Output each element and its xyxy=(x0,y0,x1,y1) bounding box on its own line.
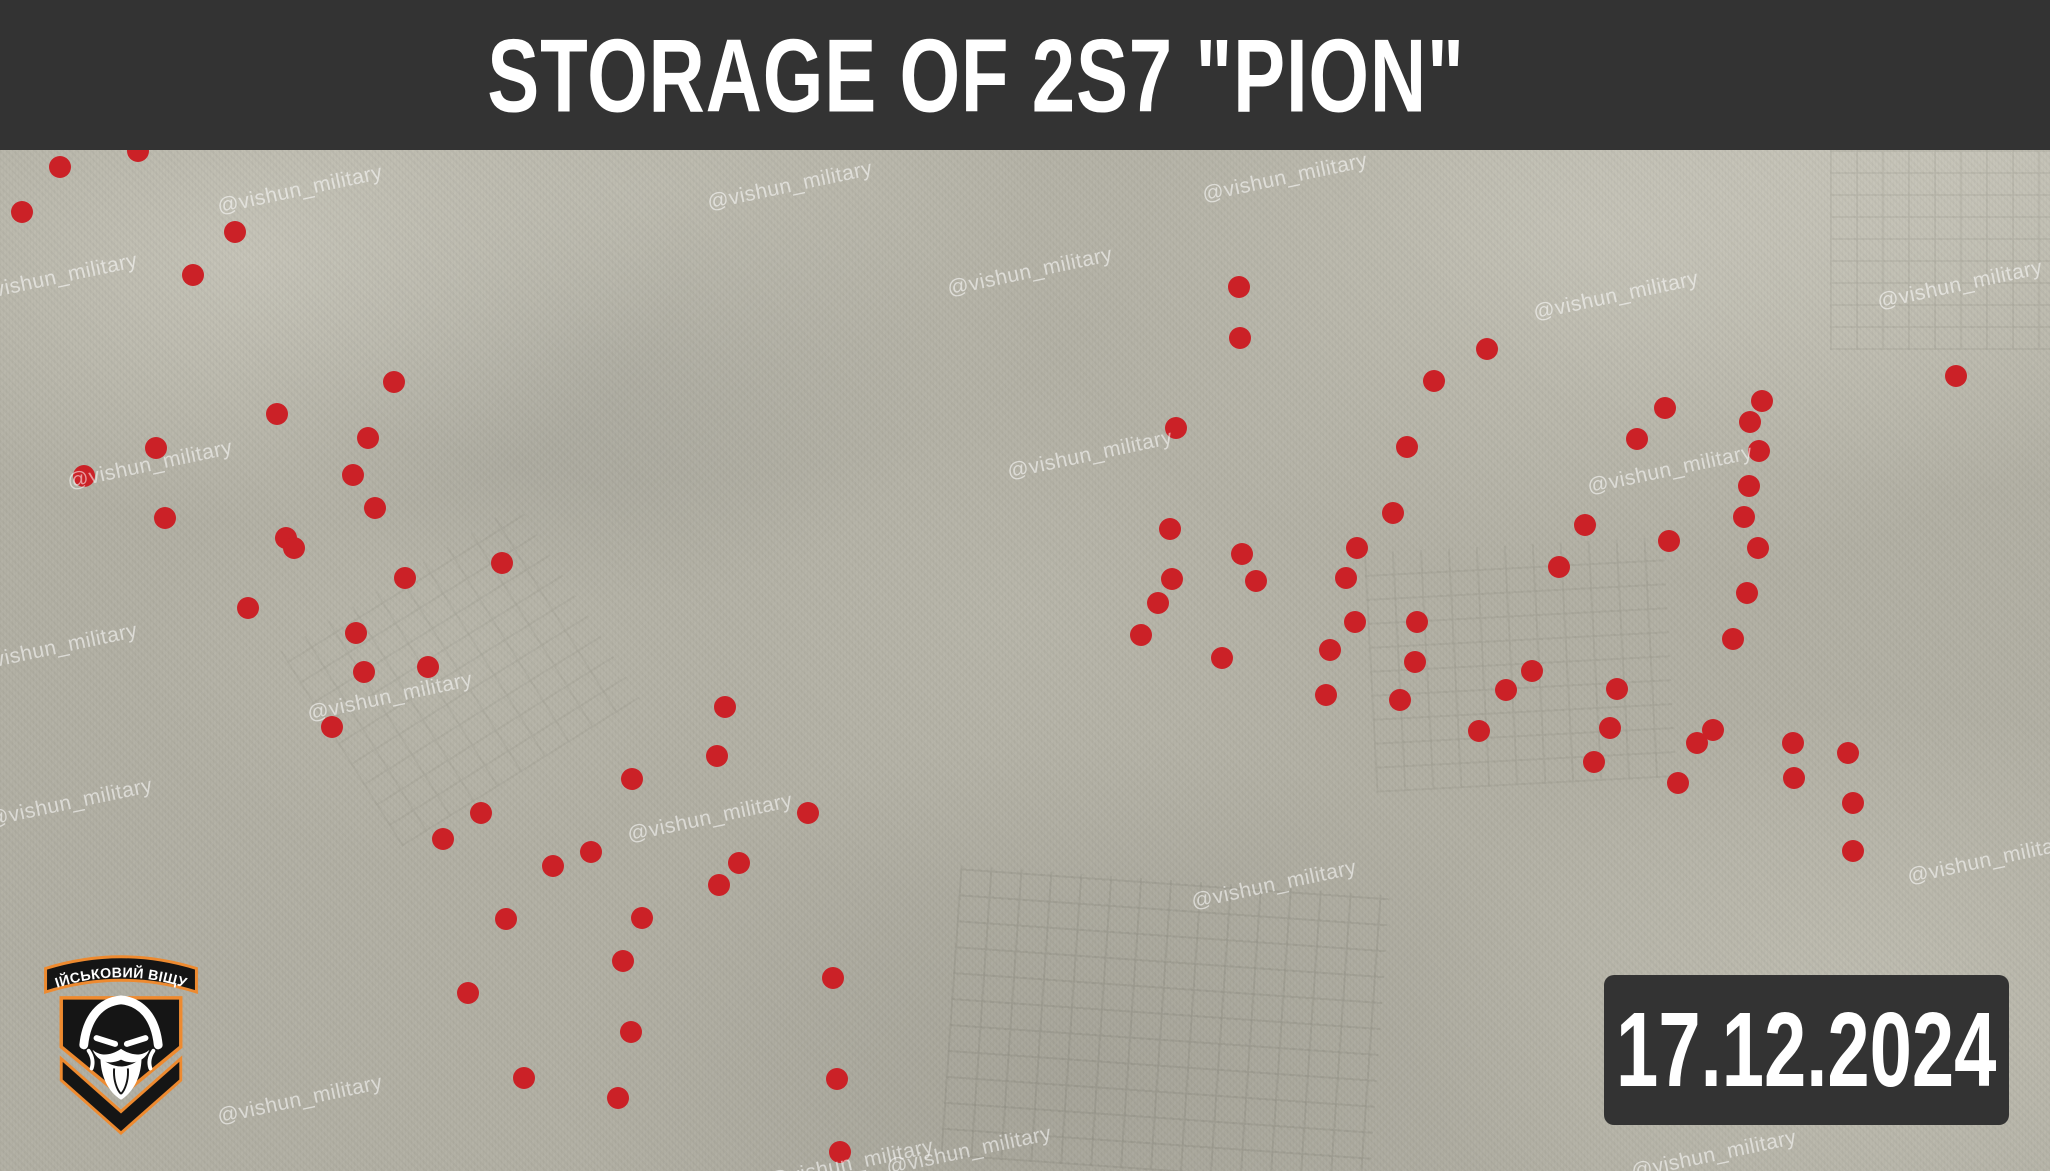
vehicle-marker xyxy=(154,507,176,529)
page-title: STORAGE OF 2S7 "PION" xyxy=(487,0,1464,153)
vehicle-marker xyxy=(1748,440,1770,462)
vehicle-marker xyxy=(706,745,728,767)
vehicle-marker xyxy=(631,907,653,929)
vehicle-marker xyxy=(1747,537,1769,559)
vehicle-marker xyxy=(1468,720,1490,742)
vehicle-marker xyxy=(457,982,479,1004)
vehicle-marker xyxy=(1945,365,1967,387)
vehicle-marker xyxy=(1626,428,1648,450)
vehicle-marker xyxy=(1667,772,1689,794)
channel-logo: ВІЙСЬКОВИЙ ВІЩУН xyxy=(37,945,205,1137)
vehicle-marker xyxy=(542,855,564,877)
vehicle-marker xyxy=(1736,582,1758,604)
vehicle-marker xyxy=(266,403,288,425)
vehicle-marker xyxy=(1574,514,1596,536)
vehicle-marker xyxy=(612,950,634,972)
vehicle-marker xyxy=(1147,592,1169,614)
vehicle-marker xyxy=(1406,611,1428,633)
vehicle-marker xyxy=(1738,475,1760,497)
vehicle-marker xyxy=(1495,679,1517,701)
vehicle-marker xyxy=(1245,570,1267,592)
vehicle-marker xyxy=(1228,276,1250,298)
vehicle-marker xyxy=(728,852,750,874)
vehicle-marker xyxy=(224,221,246,243)
date-badge: 17.12.2024 xyxy=(1604,975,2009,1125)
vehicle-marker xyxy=(1319,639,1341,661)
vehicle-marker xyxy=(607,1087,629,1109)
wizard-shield-icon: ВІЙСЬКОВИЙ ВІЩУН xyxy=(37,945,205,1137)
vehicle-marker xyxy=(11,201,33,223)
date-text: 17.12.2024 xyxy=(1616,989,1996,1111)
vehicle-marker xyxy=(182,264,204,286)
infographic-stage: @vishun_military@vishun_military@vishun_… xyxy=(0,0,2050,1171)
vehicle-marker xyxy=(342,464,364,486)
vehicle-marker xyxy=(145,437,167,459)
title-bar: STORAGE OF 2S7 "PION" xyxy=(0,0,2050,150)
vehicle-marker xyxy=(1583,751,1605,773)
vehicle-marker xyxy=(1389,689,1411,711)
vehicle-marker xyxy=(620,1021,642,1043)
vehicle-marker xyxy=(1315,684,1337,706)
vehicle-marker xyxy=(708,874,730,896)
vehicle-marker xyxy=(321,716,343,738)
vehicle-marker xyxy=(1783,767,1805,789)
vehicle-marker xyxy=(1130,624,1152,646)
vehicle-marker xyxy=(470,802,492,824)
vehicle-marker xyxy=(1396,436,1418,458)
vehicle-marker xyxy=(1658,530,1680,552)
vehicle-marker xyxy=(364,497,386,519)
vehicle-marker xyxy=(1842,792,1864,814)
vehicle-marker xyxy=(1344,611,1366,633)
vehicle-marker xyxy=(1404,651,1426,673)
vehicle-marker xyxy=(417,656,439,678)
vehicle-marker xyxy=(1733,506,1755,528)
vehicle-marker xyxy=(1842,840,1864,862)
vehicle-marker xyxy=(1161,568,1183,590)
vehicle-marker xyxy=(1476,338,1498,360)
vehicle-marker xyxy=(1229,327,1251,349)
vehicle-marker xyxy=(621,768,643,790)
vehicle-marker xyxy=(1837,742,1859,764)
vehicle-marker xyxy=(491,552,513,574)
vehicle-marker xyxy=(357,427,379,449)
vehicle-marker xyxy=(73,465,95,487)
vehicle-marker xyxy=(283,537,305,559)
vehicle-marker xyxy=(1231,543,1253,565)
vehicle-marker xyxy=(1782,732,1804,754)
vehicle-marker xyxy=(1346,537,1368,559)
vehicle-marker xyxy=(513,1067,535,1089)
vehicle-marker xyxy=(1548,556,1570,578)
vehicle-marker xyxy=(1159,518,1181,540)
vehicle-marker xyxy=(822,967,844,989)
vehicle-marker xyxy=(49,156,71,178)
vehicle-marker xyxy=(345,622,367,644)
vehicle-marker xyxy=(1606,678,1628,700)
vehicle-marker xyxy=(1165,417,1187,439)
vehicle-marker xyxy=(1382,502,1404,524)
vehicle-marker xyxy=(495,908,517,930)
vehicle-marker xyxy=(394,567,416,589)
vehicle-marker xyxy=(237,597,259,619)
vehicle-marker xyxy=(1335,567,1357,589)
vehicle-marker xyxy=(1211,647,1233,669)
vehicle-marker xyxy=(432,828,454,850)
vehicle-marker xyxy=(714,696,736,718)
vehicle-marker xyxy=(1739,411,1761,433)
vehicle-marker xyxy=(1751,390,1773,412)
vehicle-marker xyxy=(1599,717,1621,739)
vehicle-marker xyxy=(1423,370,1445,392)
vehicle-marker xyxy=(353,661,375,683)
vehicle-marker xyxy=(1722,628,1744,650)
vehicle-marker xyxy=(797,802,819,824)
vehicle-marker xyxy=(826,1068,848,1090)
vehicle-marker xyxy=(1702,719,1724,741)
vehicle-marker xyxy=(580,841,602,863)
vehicle-marker xyxy=(1654,397,1676,419)
vehicle-marker xyxy=(383,371,405,393)
vehicle-marker xyxy=(1521,660,1543,682)
vehicle-marker xyxy=(829,1141,851,1163)
